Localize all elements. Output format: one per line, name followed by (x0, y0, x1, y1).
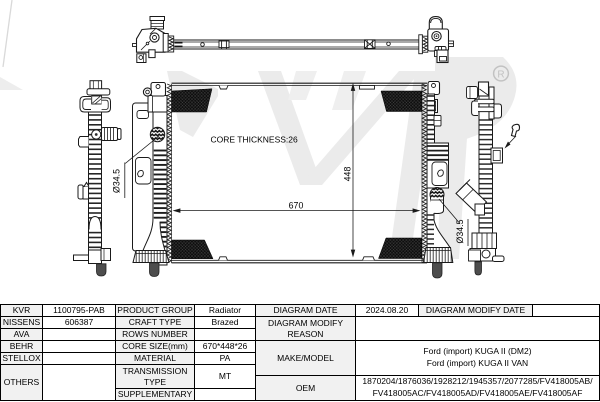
svg-text:R: R (497, 70, 504, 81)
svg-text:Ø34.5: Ø34.5 (455, 219, 465, 243)
svg-text:448: 448 (343, 167, 353, 182)
svg-text:670: 670 (289, 201, 304, 211)
svg-text:Ø34.5: Ø34.5 (112, 169, 122, 193)
svg-text:CORE THICKNESS:26: CORE THICKNESS:26 (211, 135, 299, 145)
